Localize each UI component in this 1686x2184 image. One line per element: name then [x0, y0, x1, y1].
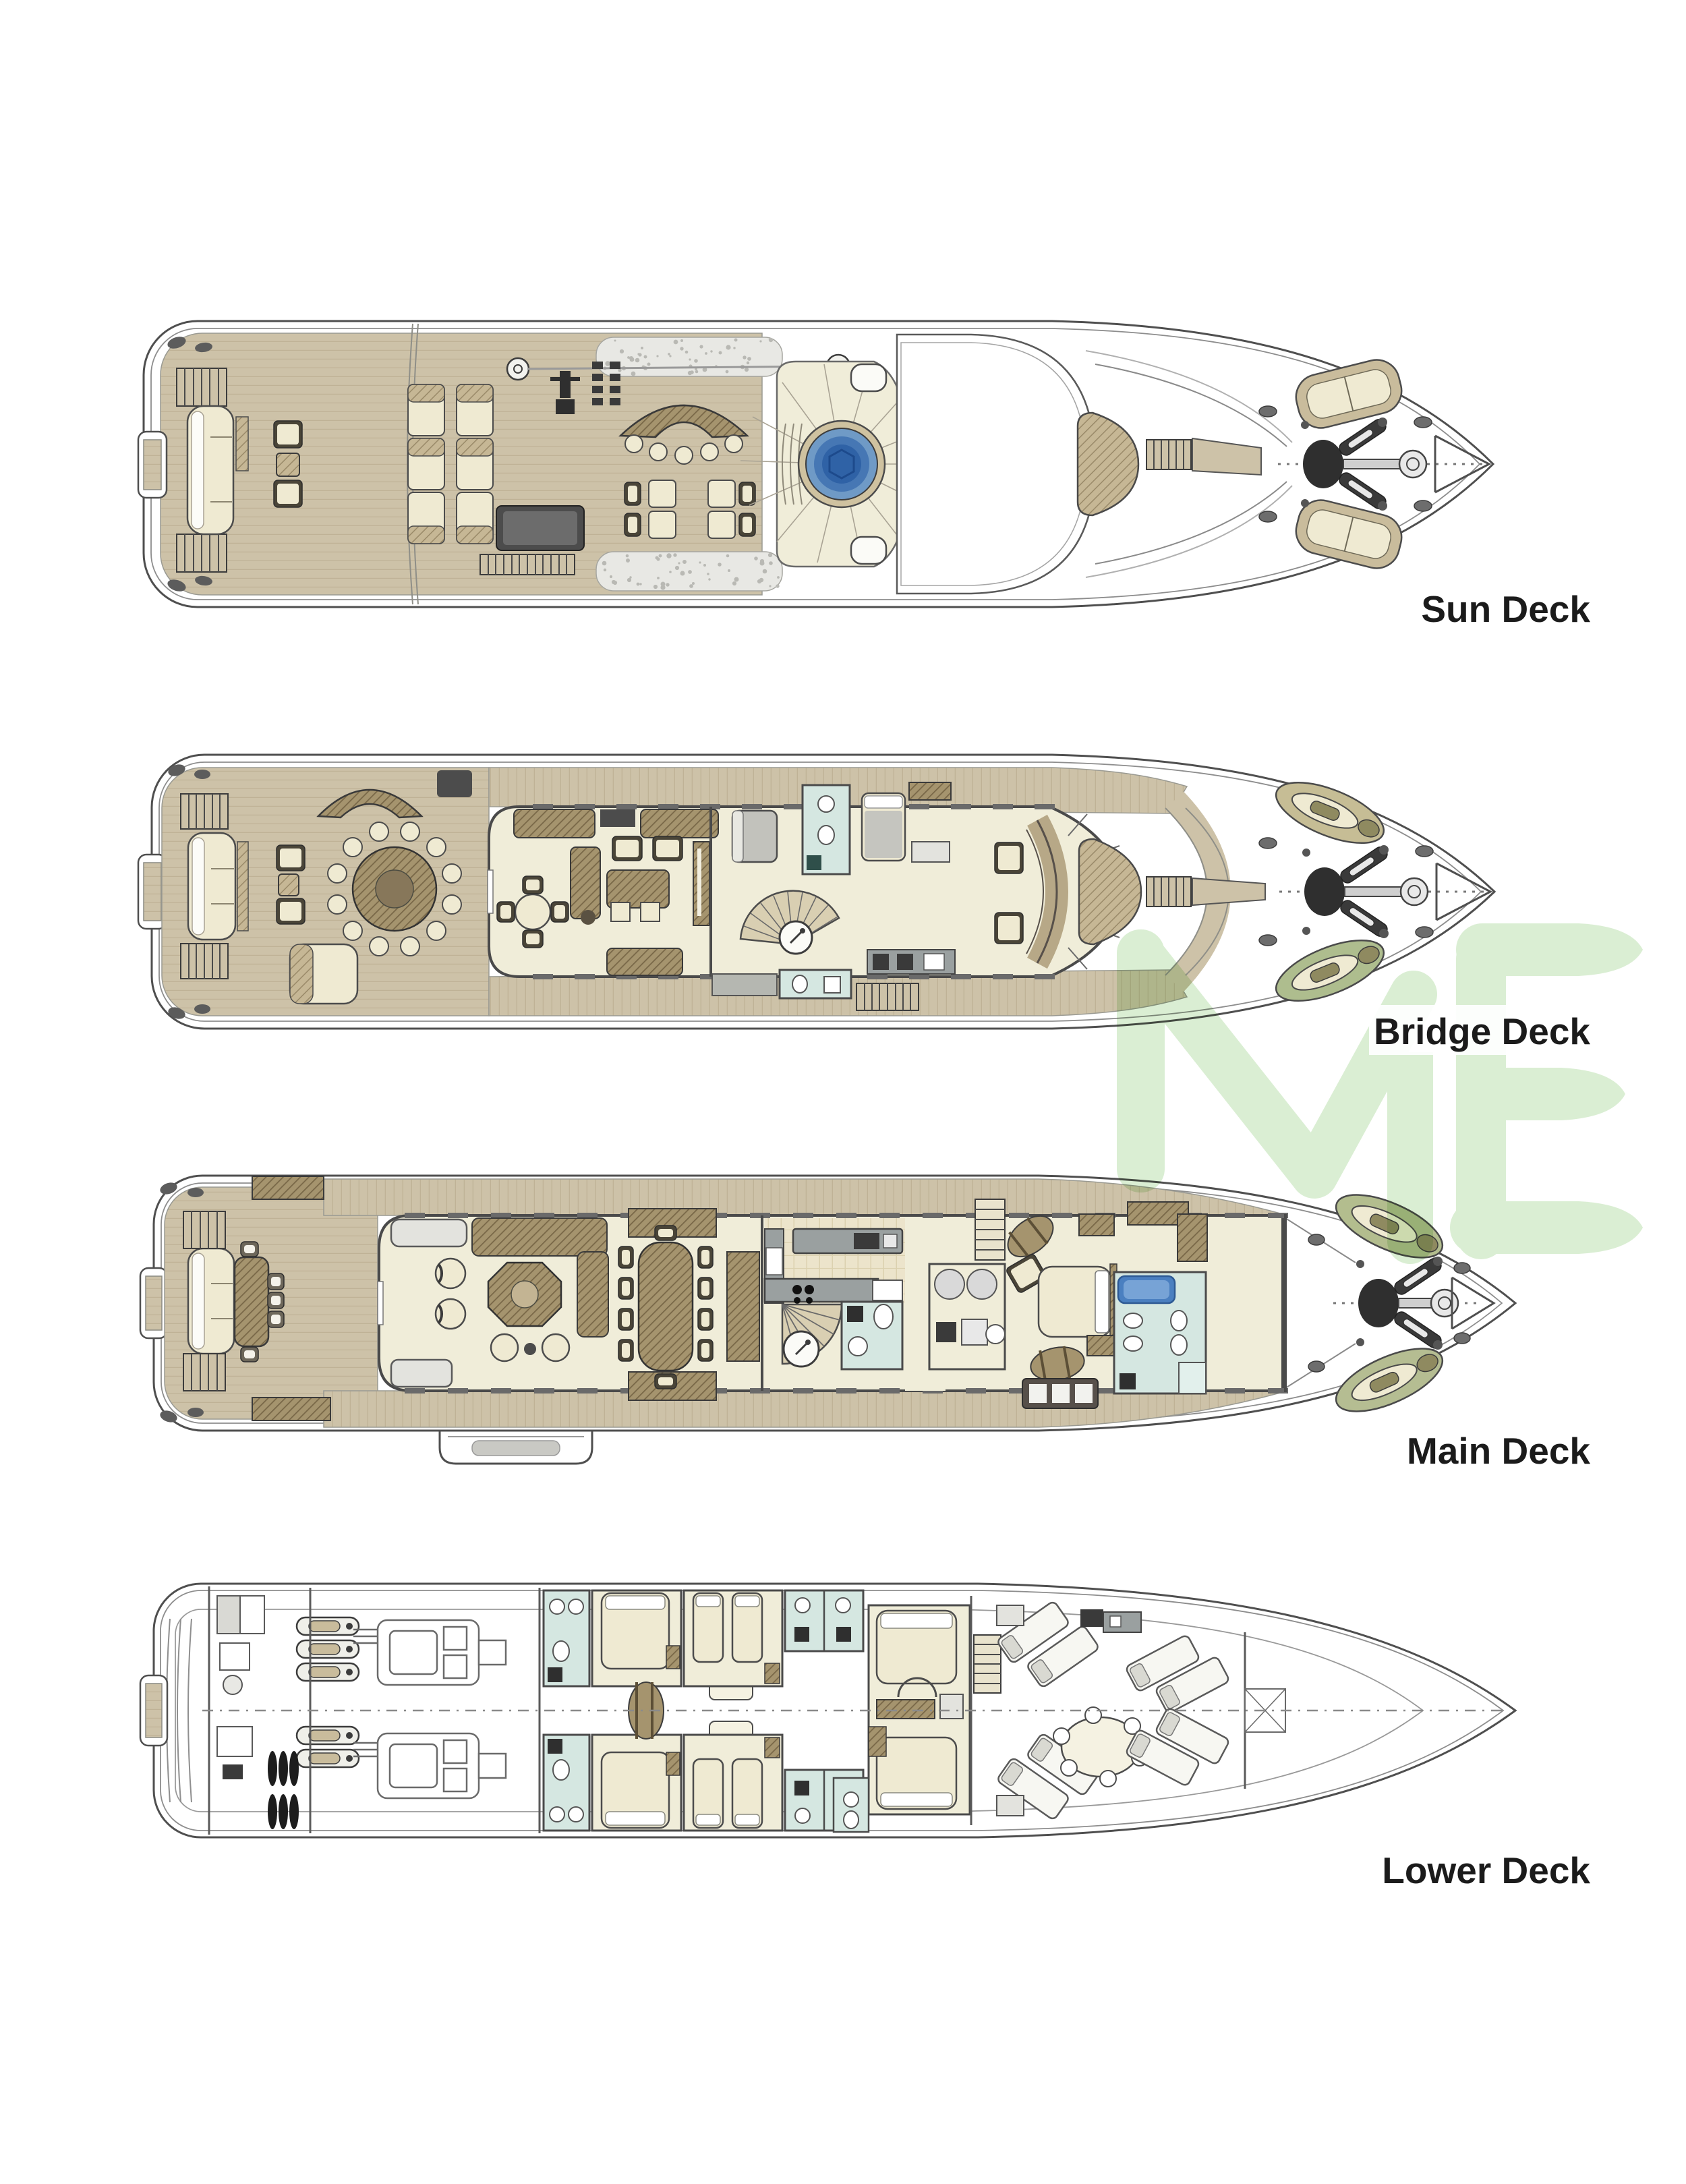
svg-text:Bridge Deck: Bridge Deck — [1374, 1010, 1590, 1052]
svg-text:Sun Deck: Sun Deck — [1421, 588, 1590, 630]
svg-text:Lower Deck: Lower Deck — [1382, 1849, 1590, 1891]
svg-text:Main Deck: Main Deck — [1407, 1430, 1590, 1472]
